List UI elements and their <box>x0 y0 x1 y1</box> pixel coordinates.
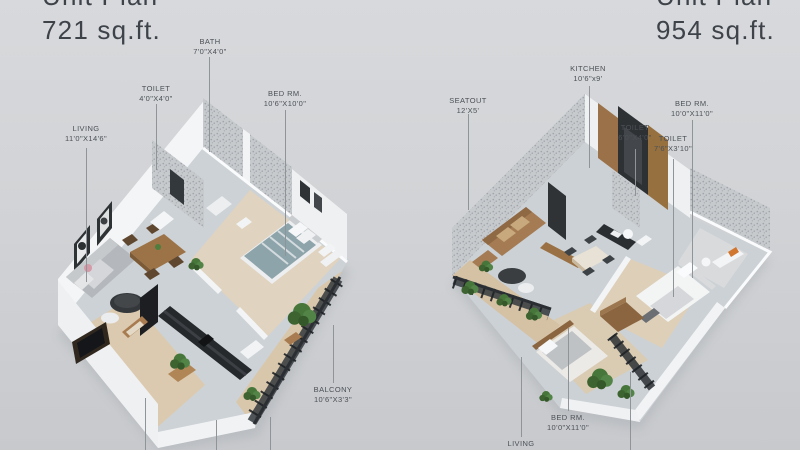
room-label-kitchen: KITCHEN10'6"x9' <box>570 64 606 84</box>
leader-cut-1 <box>145 398 146 450</box>
room-label-balcony-left: BALCONY10'6"X3'3" <box>314 385 353 405</box>
leader-toilet-left <box>156 104 157 170</box>
leader-toilet1-right <box>635 149 636 196</box>
floor-plan-poster: Unit Plan 721 sq.ft. Unit Plan 954 sq.ft… <box>0 0 800 450</box>
room-label-living-left: LIVING11'0"X14'6" <box>65 124 107 144</box>
leader-cut-3 <box>270 417 271 450</box>
left-unit-title: Unit Plan 721 sq.ft. <box>42 0 161 47</box>
right-floorplan <box>452 94 770 430</box>
leader-bath-left <box>209 57 210 152</box>
leader-kitchen <box>589 86 590 168</box>
room-label-living-right: LIVING <box>508 439 535 449</box>
room-label-seatout: SEATOUT12'X5' <box>449 96 487 116</box>
side-table <box>101 313 119 324</box>
room-label-bedroom1-right: BED RM.10'0"X11'0" <box>671 99 713 119</box>
room-label-toilet1-right: TOILET6'0"X4'0" <box>618 123 651 143</box>
room-label-toilet2-right: TOILET7'6"X3'10" <box>654 134 692 154</box>
leader-cut-2 <box>216 420 217 450</box>
side-table-2 <box>518 283 534 293</box>
room-label-bedroom-left: BED RM.10'6"X10'0" <box>264 89 307 109</box>
leader-living-right <box>521 357 522 437</box>
right-unit-title: Unit Plan 954 sq.ft. <box>656 0 775 47</box>
right-unit-area: 954 sq.ft. <box>656 13 775 47</box>
coffee-table-top <box>114 294 140 308</box>
leader-seatout <box>468 114 469 210</box>
room-label-toilet-left: TOILET4'0"X4'0" <box>139 84 172 104</box>
left-floorplan <box>58 98 350 450</box>
room-label-bedroom2-right: BED RM.10'0"X11'0" <box>547 413 589 433</box>
leader-bedroom-left <box>285 110 286 256</box>
leader-toilet2-right <box>673 159 674 297</box>
leader-bedroom2-right <box>568 328 569 411</box>
room-label-bath-left: BATH7'0"X4'0" <box>193 37 226 57</box>
left-wall-divider <box>243 129 250 184</box>
coffee-table-2 <box>498 268 526 284</box>
leader-living-left <box>86 148 87 282</box>
floorplans-render <box>0 0 800 450</box>
leader-cut-4 <box>630 372 631 450</box>
left-unit-title-line1: Unit Plan <box>42 0 161 13</box>
leader-bedroom1-right <box>692 120 693 278</box>
left-unit-area: 721 sq.ft. <box>42 13 161 47</box>
leader-balcony-left <box>333 325 334 383</box>
right-unit-title-line1: Unit Plan <box>656 0 775 13</box>
